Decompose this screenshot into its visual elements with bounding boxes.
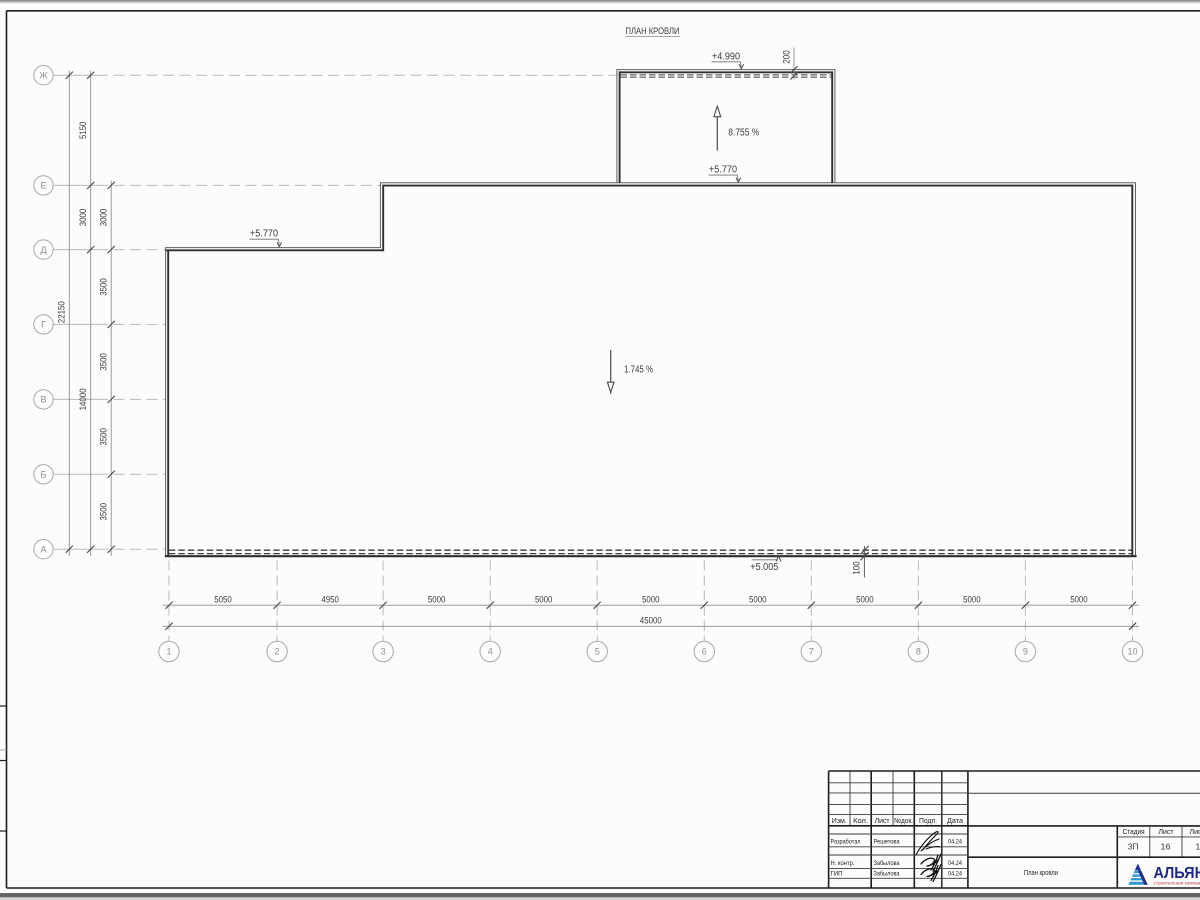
svg-text:Подп.: Подп. (919, 816, 937, 825)
svg-text:45000: 45000 (640, 616, 662, 626)
svg-text:9: 9 (1023, 647, 1028, 657)
svg-text:3: 3 (381, 647, 386, 657)
svg-text:3500: 3500 (98, 278, 108, 296)
svg-text:Лис: Лис (1190, 827, 1200, 836)
svg-text:5000: 5000 (535, 595, 553, 605)
svg-text:5000: 5000 (749, 595, 767, 605)
svg-text:1.745 %: 1.745 % (624, 365, 653, 376)
svg-text:Г: Г (41, 320, 46, 330)
svg-text:16: 16 (1161, 842, 1171, 852)
svg-text:10: 10 (1127, 647, 1137, 657)
svg-text:Забылова: Забылова (874, 869, 900, 877)
svg-text:5000: 5000 (428, 595, 446, 605)
svg-text:В: В (40, 395, 46, 405)
svg-text:3500: 3500 (98, 428, 108, 446)
svg-text:Ж: Ж (39, 70, 48, 80)
svg-text:Кол.: Кол. (853, 816, 868, 825)
svg-text:04.24: 04.24 (948, 860, 962, 867)
svg-text:1: 1 (1196, 842, 1200, 852)
svg-text:04.24: 04.24 (948, 870, 962, 877)
svg-text:5050: 5050 (214, 595, 232, 605)
svg-text:+5.770: +5.770 (709, 165, 737, 176)
svg-text:4: 4 (488, 647, 493, 657)
svg-text:5000: 5000 (963, 595, 981, 605)
svg-text:22150: 22150 (57, 301, 67, 323)
svg-text:8.755 %: 8.755 % (728, 127, 759, 138)
svg-text:4950: 4950 (321, 595, 339, 605)
svg-text:Лист: Лист (1159, 827, 1175, 836)
svg-text:Е: Е (40, 181, 46, 191)
svg-text:Забылова: Забылова (874, 859, 900, 867)
svg-text:5150: 5150 (78, 122, 88, 140)
svg-text:Н. контр.: Н. контр. (831, 860, 855, 867)
svg-text:5: 5 (595, 647, 600, 657)
svg-text:строительная компания: строительная компания (1154, 880, 1200, 885)
svg-text:5000: 5000 (856, 595, 874, 605)
svg-text:Д: Д (40, 245, 46, 255)
svg-text:100: 100 (852, 561, 862, 575)
svg-text:План кровли: План кровли (1024, 868, 1058, 877)
svg-text:14000: 14000 (78, 388, 88, 410)
svg-text:№док.: №док. (894, 816, 913, 825)
svg-text:Решетова: Решетова (874, 838, 900, 845)
svg-text:3500: 3500 (98, 353, 108, 371)
svg-text:2: 2 (275, 647, 280, 657)
svg-text:5000: 5000 (1070, 595, 1088, 605)
svg-text:1: 1 (166, 647, 171, 657)
svg-text:Стадия: Стадия (1123, 827, 1145, 836)
svg-text:5000: 5000 (642, 595, 660, 605)
svg-text:+5.005: +5.005 (750, 562, 778, 573)
svg-text:6: 6 (702, 647, 707, 657)
svg-text:ГИП: ГИП (831, 870, 843, 877)
svg-text:Лист: Лист (875, 816, 891, 825)
svg-text:А: А (40, 544, 46, 554)
svg-text:ЗП: ЗП (1128, 842, 1139, 852)
svg-text:Б: Б (41, 470, 47, 480)
svg-text:ПЛАН КРОВЛИ: ПЛАН КРОВЛИ (626, 26, 680, 37)
svg-text:8: 8 (916, 647, 921, 657)
svg-text:Изм.: Изм. (832, 816, 847, 825)
svg-text:04.24: 04.24 (948, 838, 962, 845)
svg-text:3500: 3500 (98, 503, 108, 521)
svg-text:3000: 3000 (78, 209, 88, 227)
svg-text:Разработал: Разработал (831, 837, 861, 845)
svg-text:200: 200 (781, 50, 791, 64)
svg-text:+4.990: +4.990 (712, 52, 740, 63)
svg-text:Дата: Дата (947, 816, 964, 825)
svg-text:3000: 3000 (98, 209, 108, 227)
svg-text:7: 7 (809, 647, 814, 657)
svg-text:+5.770: +5.770 (250, 229, 278, 240)
